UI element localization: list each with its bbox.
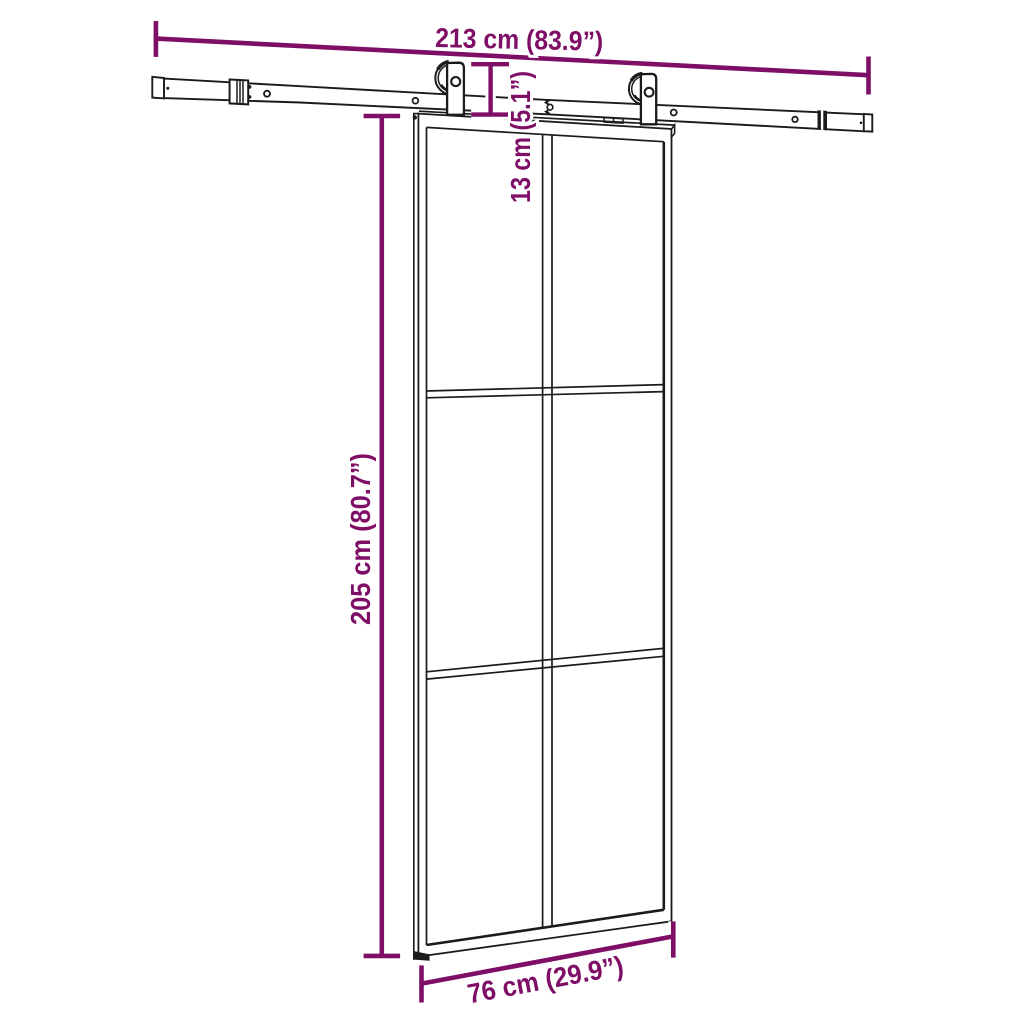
svg-text:13 cm (5.1”): 13 cm (5.1”) bbox=[505, 71, 536, 203]
svg-text:213 cm (83.9”): 213 cm (83.9”) bbox=[435, 22, 604, 57]
svg-text:205 cm (80.7”): 205 cm (80.7”) bbox=[345, 453, 376, 625]
